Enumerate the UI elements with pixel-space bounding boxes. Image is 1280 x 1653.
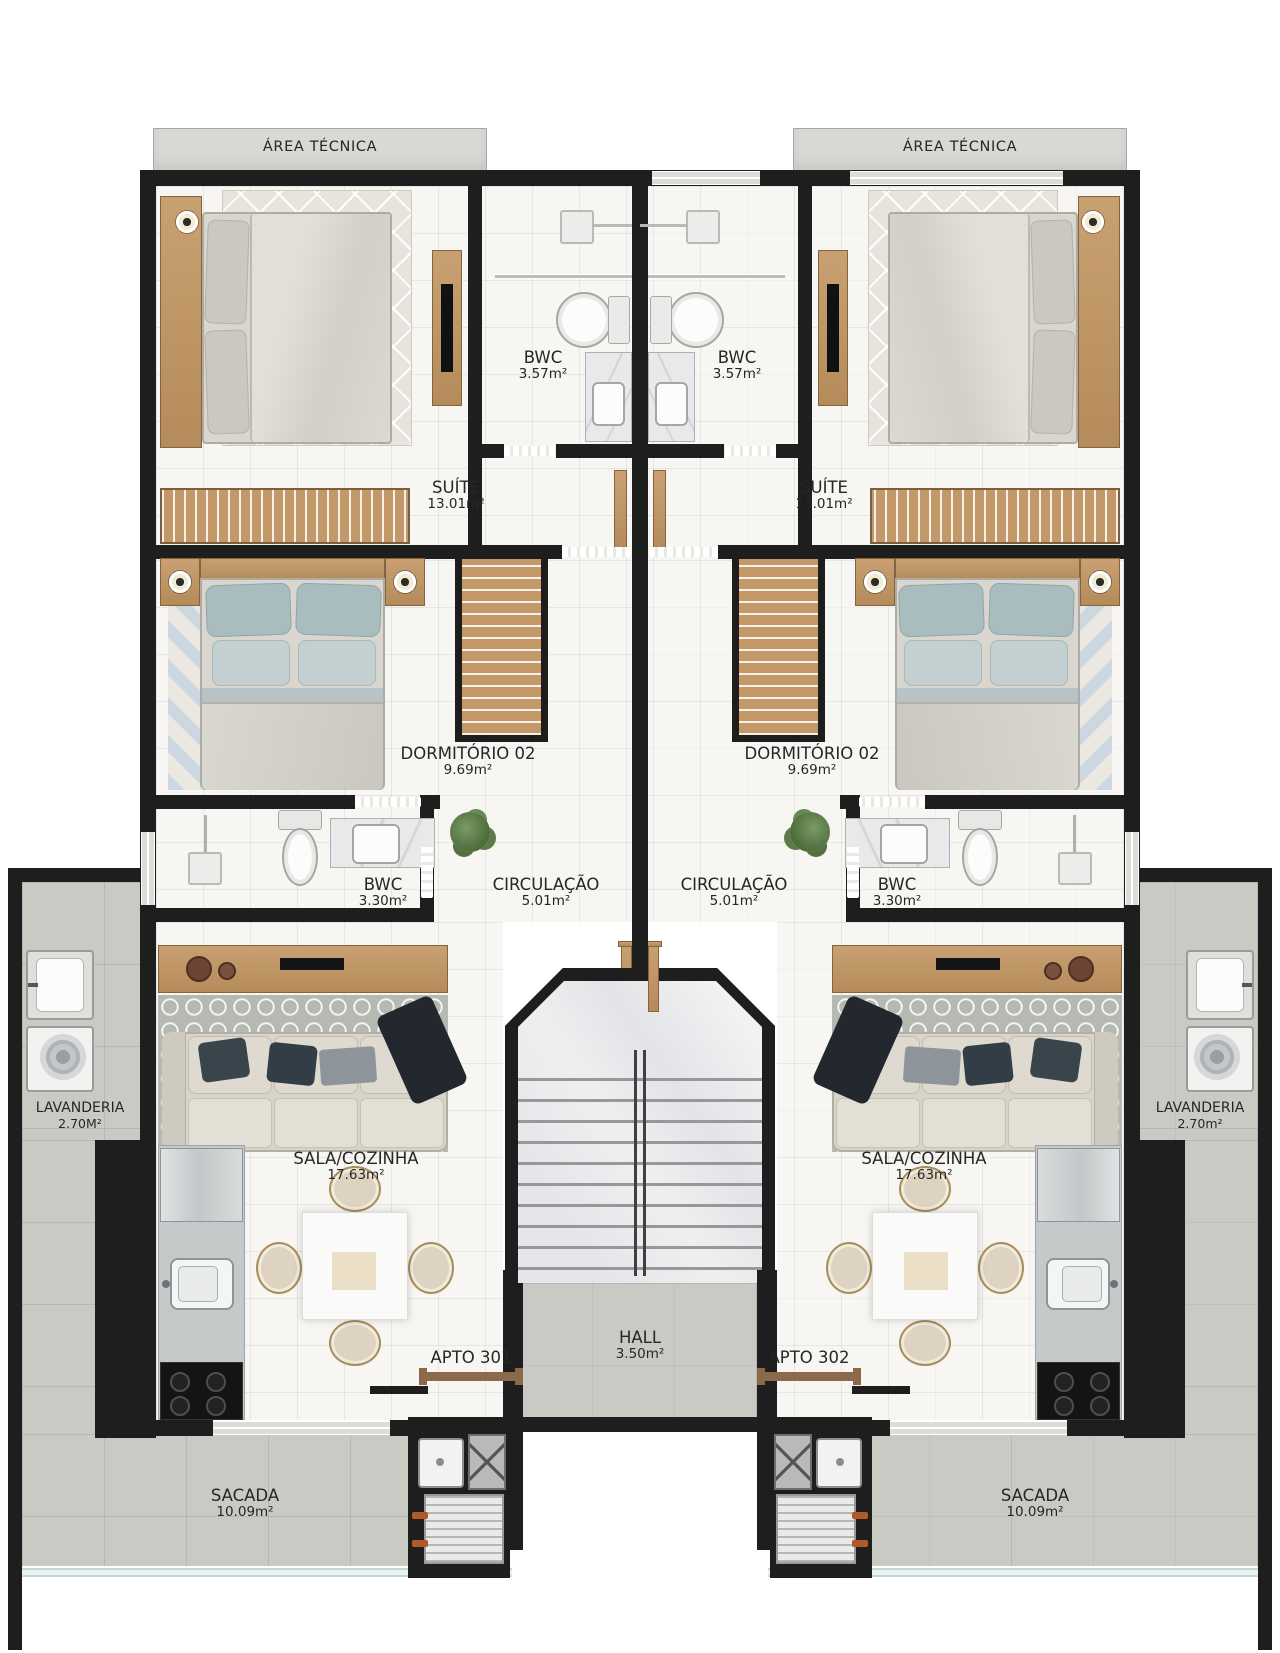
suite-pillow [1030,329,1076,434]
room-name: SALA/COZINHA [861,1149,986,1168]
sofa-seat-cushion [1008,1098,1092,1148]
unit-name: APTO 302 [768,1348,849,1367]
room-label-hall: HALL 3.50m² [616,1328,665,1363]
door-threshold [724,446,776,456]
laundry-floor-lower [1185,1140,1258,1434]
toilet-icon [962,828,998,886]
shower-glass-partition [648,274,785,279]
bedroom-lamp [1087,569,1113,595]
wall-party [632,170,648,970]
bedroom-duvet [897,702,1078,790]
decor-bowl [1044,962,1062,980]
suite-pillow [1030,219,1076,324]
stair-handrail [634,1050,646,1276]
room-area: 3.30m² [359,894,408,910]
wall [1124,170,1140,882]
room-name: ÁREA TÉCNICA [903,139,1017,156]
toilet-tank [650,296,672,344]
room-label-lavanderia-right: LAVANDERIA 2.70m² [1156,1100,1245,1131]
room-name: BWC [873,875,922,894]
room-area: 9.69m² [745,763,880,779]
bedroom-headboard [895,558,1080,580]
shower-arm [1073,815,1076,853]
room-label-bwc-social-right: BWC 3.30m² [873,875,922,910]
room-area: 3.57m² [713,367,762,383]
room-area: 3.57m² [519,367,568,383]
suite-wardrobe [870,488,1120,544]
room-label-sacada-right: SACADA 10.09m² [1001,1486,1069,1521]
wall-shaft [1124,1140,1185,1438]
room-label-sala-left: SALA/COZINHA 17.63m² [293,1149,418,1184]
room-label-bwc-social-left: BWC 3.30m² [359,875,408,910]
room-label-circulacao-left: CIRCULAÇÃO 5.01m² [493,875,600,910]
plant-icon [790,812,830,852]
wall [872,1420,890,1436]
room-label-dormitorio-left: DORMITÓRIO 02 9.69m² [401,744,536,779]
dining-chair [978,1242,1024,1294]
entry-door-jamb [853,1368,861,1385]
room-name: SACADA [211,1486,279,1505]
washer-drum [1194,1034,1240,1080]
room-name: SALA/COZINHA [293,1149,418,1168]
wall [925,795,1140,809]
room-name: LAVANDERIA [36,1100,125,1117]
dining-chair [899,1320,951,1366]
toilet-icon [668,292,724,348]
wall [776,444,812,458]
wall [852,1386,910,1394]
room-name: BWC [519,348,568,367]
room-name: HALL [616,1328,665,1347]
sink-icon [655,382,688,426]
door-threshold [859,797,925,807]
room-label-suite-right: SUÍTE 13.01m² [795,478,852,513]
grill-icon [776,1494,856,1564]
suite-duvet [890,214,1030,442]
unit-label-apto-302: APTO 302 [768,1348,849,1367]
room-area: 17.63m² [861,1168,986,1184]
bedroom-pillow [988,583,1075,638]
folded-blanket [903,1046,961,1086]
sofa-seat-cushion [836,1098,920,1148]
tv-icon [827,284,839,372]
room-label-lavanderia-left: LAVANDERIA 2.70M² [36,1100,125,1131]
bwc-window [652,171,760,185]
toilet-tank [958,810,1002,830]
bedroom-pillow [904,640,982,686]
duct-shaft [774,1434,812,1490]
bedroom-pillow [898,583,985,638]
room-name: CIRCULAÇÃO [681,875,788,894]
faucet-icon [1242,983,1252,987]
unit-name: APTO 301 [430,1348,511,1367]
burner [1054,1396,1074,1416]
bedroom-closet [732,552,825,742]
throw-pillow [962,1042,1014,1087]
suite-window [850,171,1063,185]
room-area: 13.01m² [427,497,484,513]
sofa-seat-cushion [922,1098,1006,1148]
wall [1124,868,1272,882]
room-name: BWC [359,875,408,894]
entry-door [762,1372,856,1381]
room-name: ÁREA TÉCNICA [263,139,377,156]
sink-icon [880,824,928,864]
room-label-circulacao-right: CIRCULAÇÃO 5.01m² [681,875,788,910]
room-area: 10.09m² [211,1505,279,1521]
sofa-armrest [1094,1032,1118,1152]
room-area: 17.63m² [293,1168,418,1184]
room-area: 10.09m² [1001,1505,1069,1521]
room-name: SUÍTE [427,478,484,497]
faucet-icon [836,1458,844,1466]
room-label-bwc-suite-left: BWC 3.57m² [519,348,568,383]
bedroom-lamp [862,569,888,595]
room-name: CIRCULAÇÃO [493,875,600,894]
burner [1054,1372,1074,1392]
floor-plan: ÁREA TÉCNICA ÁREA TÉCNICA BWC 3.57m² BWC… [0,0,1280,1653]
dining-chair [826,1242,872,1294]
room-label-area-tecnica-right: ÁREA TÉCNICA [903,139,1017,156]
bwc-social-window [1125,832,1139,905]
laundry-tank-basin [1196,958,1244,1012]
wall [632,444,724,458]
kitchen-sink-basin [1062,1266,1102,1302]
suite-lamp [1078,207,1108,237]
grill-handle [852,1540,868,1547]
table-centerpiece [904,1252,948,1290]
door-threshold [650,547,718,557]
room-label-sacada-left: SACADA 10.09m² [211,1486,279,1521]
room-label-suite-left: SUÍTE 13.01m² [427,478,484,513]
unit-label-apto-301: APTO 301 [430,1348,511,1367]
room-label-area-tecnica-left: ÁREA TÉCNICA [263,139,377,156]
decor-bowl [1068,956,1094,982]
suite-door-leaf [653,470,666,552]
room-name: SUÍTE [795,478,852,497]
room-label-bwc-suite-right: BWC 3.57m² [713,348,762,383]
room-label-sala-right: SALA/COZINHA 17.63m² [861,1149,986,1184]
room-name: DORMITÓRIO 02 [401,744,536,763]
room-area: 5.01m² [493,894,600,910]
shower-icon [686,210,720,244]
stair-gate-post [648,946,659,1012]
shower-icon [1058,852,1092,885]
room-area: 13.01m² [795,497,852,513]
shower-arm [640,224,686,227]
room-area: 2.70M² [36,1117,125,1132]
room-name: DORMITÓRIO 02 [745,744,880,763]
room-area: 2.70m² [1156,1117,1245,1132]
room-area: 3.30m² [873,894,922,910]
kitchen-window [890,1421,1067,1435]
faucet-icon [1110,1280,1118,1288]
fridge-icon [1037,1148,1120,1222]
room-label-dormitorio-right: DORMITÓRIO 02 9.69m² [745,744,880,779]
throw-pillow [1029,1037,1082,1083]
apartment-right-graphics [0,0,1280,1653]
tv-icon [936,958,1000,970]
grill-handle [852,1512,868,1519]
room-area: 5.01m² [681,894,788,910]
entry-door-jamb [757,1368,765,1385]
burner [1090,1372,1110,1392]
room-name: LAVANDERIA [1156,1100,1245,1117]
door-threshold [847,846,859,898]
room-area: 3.50m² [616,1347,665,1363]
room-name: SACADA [1001,1486,1069,1505]
wall [1124,882,1140,1140]
wall-outer [1258,868,1272,1650]
burner [1090,1396,1110,1416]
room-area: 9.69m² [401,763,536,779]
bedroom-pillow [990,640,1068,686]
wall [1067,1420,1185,1436]
room-name: BWC [713,348,762,367]
